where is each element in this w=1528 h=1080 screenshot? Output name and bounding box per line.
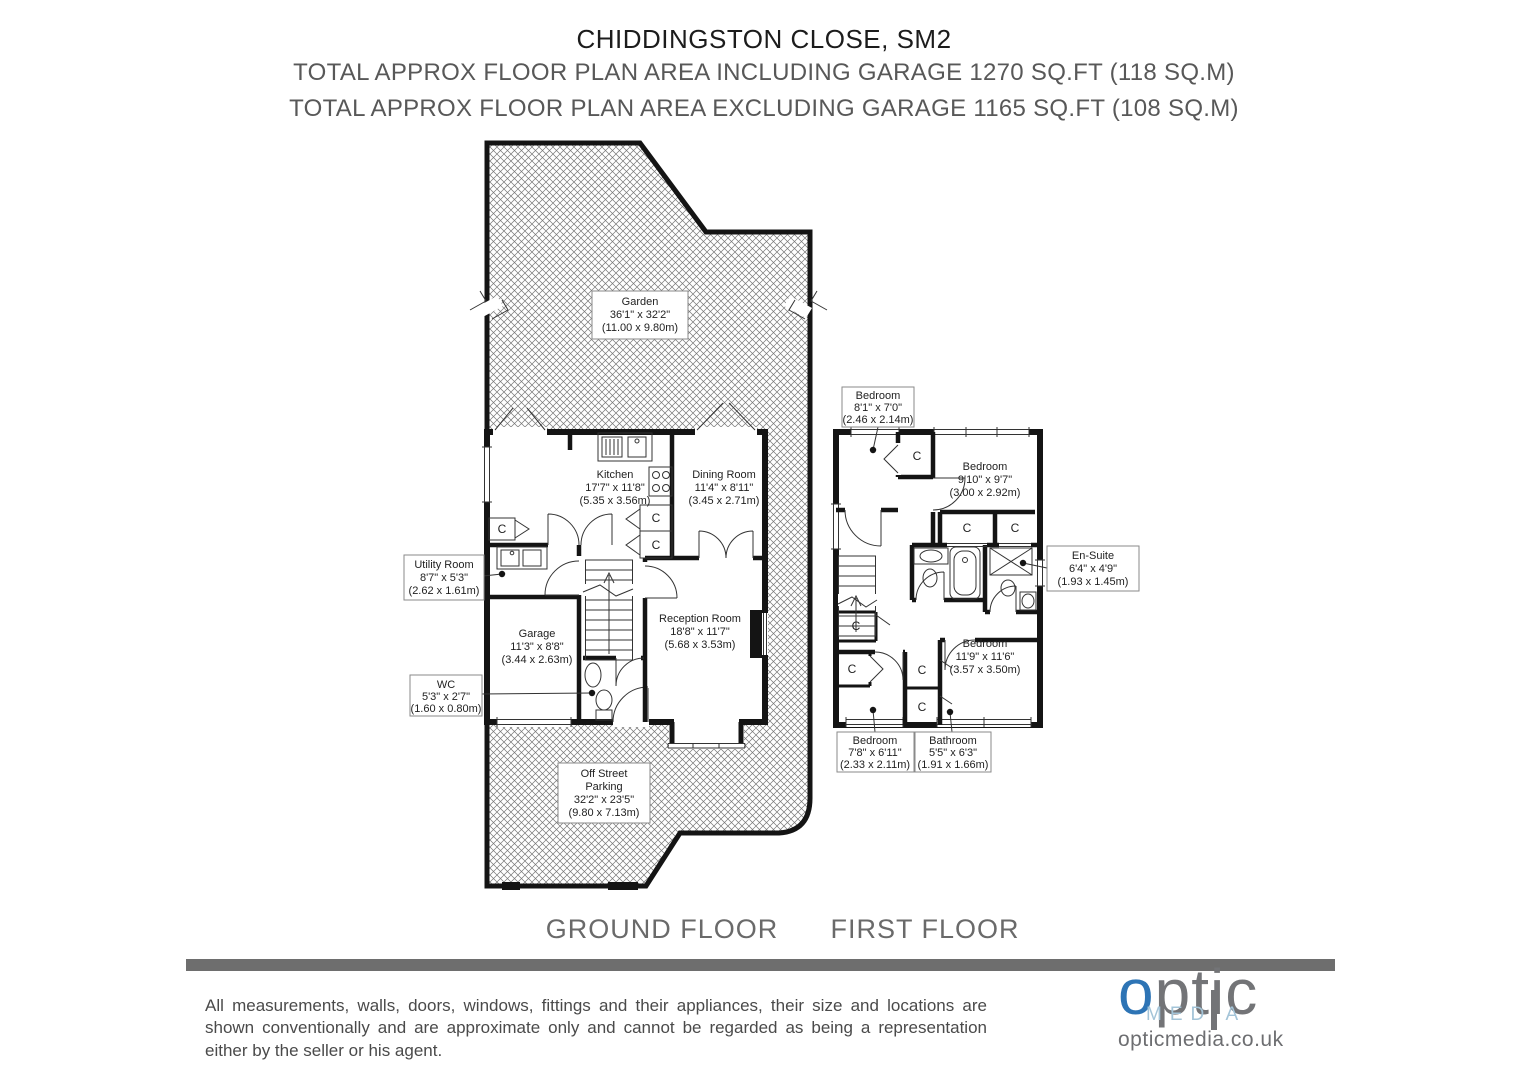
svg-text:Bathroom: Bathroom <box>929 735 977 747</box>
svg-text:Dining Room: Dining Room <box>692 469 756 481</box>
svg-text:Bedroom: Bedroom <box>963 638 1008 650</box>
svg-text:(3.44 x 2.63m): (3.44 x 2.63m) <box>502 654 573 666</box>
logo-media-text: MEDIA <box>1146 1004 1246 1026</box>
svg-text:Parking: Parking <box>585 781 622 793</box>
svg-text:(3.45 x 2.71m): (3.45 x 2.71m) <box>689 495 760 507</box>
svg-text:8'1" x 7'0": 8'1" x 7'0" <box>854 402 902 414</box>
garden-name: Garden <box>622 296 659 308</box>
svg-text:(2.33 x 2.11m): (2.33 x 2.11m) <box>840 759 910 771</box>
svg-text:17'7" x 11'8": 17'7" x 11'8" <box>585 482 645 494</box>
svg-text:9'10" x 9'7": 9'10" x 9'7" <box>958 474 1012 486</box>
svg-text:(3.00 x 2.92m): (3.00 x 2.92m) <box>950 487 1021 499</box>
svg-text:C: C <box>918 700 927 714</box>
svg-text:WC: WC <box>437 679 455 691</box>
svg-text:(5.68 x 3.53m): (5.68 x 3.53m) <box>665 639 736 651</box>
svg-text:(1.60 x 0.80m): (1.60 x 0.80m) <box>411 703 482 715</box>
svg-text:C: C <box>913 449 922 463</box>
svg-text:Reception Room: Reception Room <box>659 613 741 625</box>
svg-text:Bedroom: Bedroom <box>963 461 1008 473</box>
wc-label: WC 5'3" x 2'7" (1.60 x 0.80m) <box>410 675 482 716</box>
svg-text:(2.46 x 2.14m): (2.46 x 2.14m) <box>843 414 914 426</box>
svg-text:Bedroom: Bedroom <box>856 390 901 402</box>
fence-post <box>502 882 520 890</box>
kitchen-window <box>482 447 492 502</box>
svg-text:18'8" x 11'7": 18'8" x 11'7" <box>670 626 730 638</box>
svg-text:Garage: Garage <box>519 628 556 640</box>
ensuite-label: En-Suite 6'4" x 4'9" (1.93 x 1.45m) <box>1047 546 1139 591</box>
cupboard-label: C <box>498 522 507 536</box>
svg-text:C: C <box>852 619 861 633</box>
svg-text:5'3" x 2'7": 5'3" x 2'7" <box>422 691 470 703</box>
svg-text:C: C <box>963 521 972 535</box>
svg-text:5'5" x 6'3": 5'5" x 6'3" <box>929 747 977 759</box>
optic-media-logo: optic MEDIA opticmedia.co.uk <box>1118 960 1338 1024</box>
svg-text:Utility Room: Utility Room <box>414 559 473 571</box>
cupboard-label: C <box>652 511 661 525</box>
svg-text:32'2" x 23'5": 32'2" x 23'5" <box>574 794 634 806</box>
svg-text:(1.91 x 1.66m): (1.91 x 1.66m) <box>918 759 989 771</box>
garden-label: Garden 36'1" x 32'2" (11.00 x 9.80m) <box>592 291 688 339</box>
svg-text:7'8" x 6'11": 7'8" x 6'11" <box>848 747 901 759</box>
disclaimer-text: All measurements, walls, doors, windows,… <box>205 995 987 1062</box>
floorplan-page: CHIDDINGSTON CLOSE, SM2 TOTAL APPROX FLO… <box>0 0 1528 1080</box>
reception-room-label: Reception Room 18'8" x 11'7" (5.68 x 3.5… <box>659 613 741 651</box>
svg-text:6'4" x 4'9": 6'4" x 4'9" <box>1069 563 1117 575</box>
first-floor-plan: C C C C C C C Bedroom 8'1" x 7'0" <box>831 387 1139 772</box>
dining-room-label: Dining Room 11'4" x 8'11" (3.45 x 2.71m) <box>689 469 760 507</box>
bedroom4-label: Bedroom 7'8" x 6'11" (2.33 x 2.11m) <box>837 732 914 772</box>
svg-text:11'4" x 8'11": 11'4" x 8'11" <box>695 482 754 494</box>
ensuite-fixtures <box>990 548 1036 610</box>
fence-post <box>608 882 638 890</box>
bedroom2-label: Bedroom 9'10" x 9'7" (3.00 x 2.92m) <box>950 461 1021 499</box>
off-street-parking-label: Off Street Parking 32'2" x 23'5" (9.80 x… <box>558 763 650 823</box>
svg-text:(3.57 x 3.50m): (3.57 x 3.50m) <box>950 664 1021 676</box>
cupboard-label: C <box>652 538 661 552</box>
svg-text:(1.93 x 1.45m): (1.93 x 1.45m) <box>1058 576 1129 588</box>
ground-floor-plan: C C C <box>404 143 827 890</box>
svg-text:En-Suite: En-Suite <box>1072 550 1114 562</box>
svg-text:C: C <box>848 662 857 676</box>
garage-door <box>497 717 571 727</box>
svg-text:C: C <box>1011 521 1020 535</box>
bathroom-fixtures <box>914 547 980 599</box>
bedroom1-label: Bedroom 8'1" x 7'0" (2.46 x 2.14m) <box>842 387 914 427</box>
svg-text:Kitchen: Kitchen <box>597 469 634 481</box>
svg-text:(9.80 x 7.13m): (9.80 x 7.13m) <box>569 807 640 819</box>
svg-text:11'3" x 8'8": 11'3" x 8'8" <box>510 641 563 653</box>
reception-side-window <box>762 613 768 655</box>
garden-imperial: 36'1" x 32'2" <box>610 309 670 321</box>
svg-text:Bedroom: Bedroom <box>853 735 898 747</box>
svg-text:C: C <box>918 663 927 677</box>
svg-text:8'7" x 5'3": 8'7" x 5'3" <box>420 572 468 584</box>
first-floor-caption: FIRST FLOOR <box>765 914 1085 945</box>
svg-text:Off Street: Off Street <box>581 768 628 780</box>
garden-metric: (11.00 x 9.80m) <box>602 322 678 334</box>
svg-text:(2.62 x 1.61m): (2.62 x 1.61m) <box>409 585 480 597</box>
bathroom-label: Bathroom 5'5" x 6'3" (1.91 x 1.66m) <box>915 732 991 772</box>
svg-text:11'9" x 11'6": 11'9" x 11'6" <box>956 651 1015 663</box>
svg-text:(5.35 x 3.56m): (5.35 x 3.56m) <box>580 495 651 507</box>
logo-website: opticmedia.co.uk <box>1118 1028 1284 1052</box>
utility-room-label: Utility Room 8'7" x 5'3" (2.62 x 1.61m) <box>404 555 484 600</box>
